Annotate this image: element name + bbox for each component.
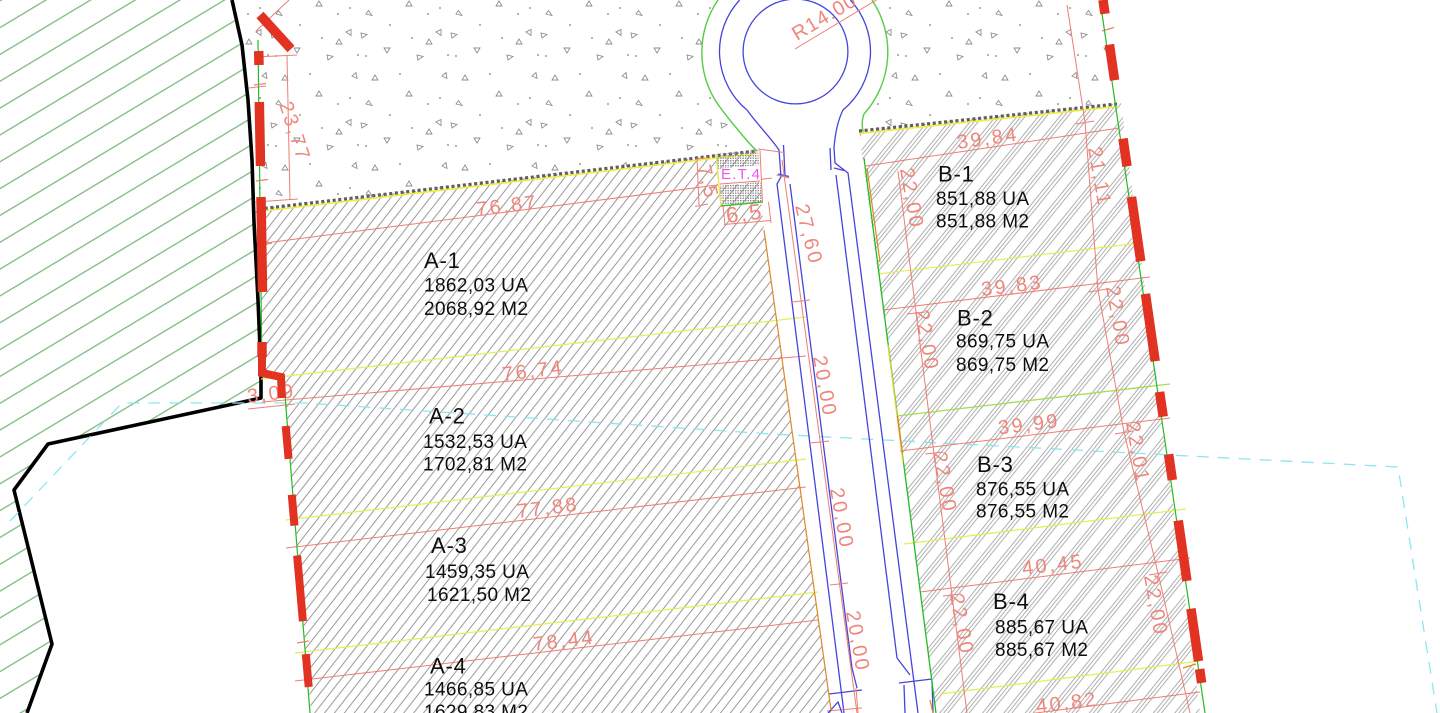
svg-text:A-2: A-2: [429, 404, 466, 429]
svg-text:876,55 UA: 876,55 UA: [976, 480, 1069, 501]
svg-text:876,55 M2: 876,55 M2: [976, 502, 1069, 523]
svg-text:1466,85 UA: 1466,85 UA: [424, 680, 528, 701]
svg-text:1459,35 UA: 1459,35 UA: [425, 562, 529, 583]
svg-text:E.T.4: E.T.4: [721, 166, 761, 183]
svg-text:885,67 UA: 885,67 UA: [995, 618, 1088, 639]
svg-text:1862,03 UA: 1862,03 UA: [424, 276, 528, 297]
svg-text:B-3: B-3: [977, 452, 1014, 477]
svg-text:B-4: B-4: [993, 589, 1030, 614]
svg-text:1702,81 M2: 1702,81 M2: [423, 455, 527, 476]
svg-text:6,5: 6,5: [725, 199, 766, 228]
svg-text:1532,53 UA: 1532,53 UA: [423, 432, 527, 453]
svg-text:1629,83 M2: 1629,83 M2: [424, 702, 528, 713]
svg-text:869,75 UA: 869,75 UA: [956, 332, 1049, 353]
svg-text:2068,92 M2: 2068,92 M2: [424, 299, 528, 320]
svg-text:A-4: A-4: [430, 654, 467, 679]
svg-text:1621,50 M2: 1621,50 M2: [427, 585, 531, 606]
svg-text:851,88 UA: 851,88 UA: [936, 189, 1029, 210]
svg-text:B-1: B-1: [938, 162, 975, 187]
svg-text:869,75 M2: 869,75 M2: [956, 355, 1049, 376]
svg-text:851,88 M2: 851,88 M2: [936, 212, 1029, 233]
svg-text:A-3: A-3: [431, 533, 468, 558]
svg-text:B-2: B-2: [957, 306, 994, 331]
svg-text:A-1: A-1: [424, 248, 461, 273]
svg-text:885,67 M2: 885,67 M2: [995, 640, 1088, 661]
